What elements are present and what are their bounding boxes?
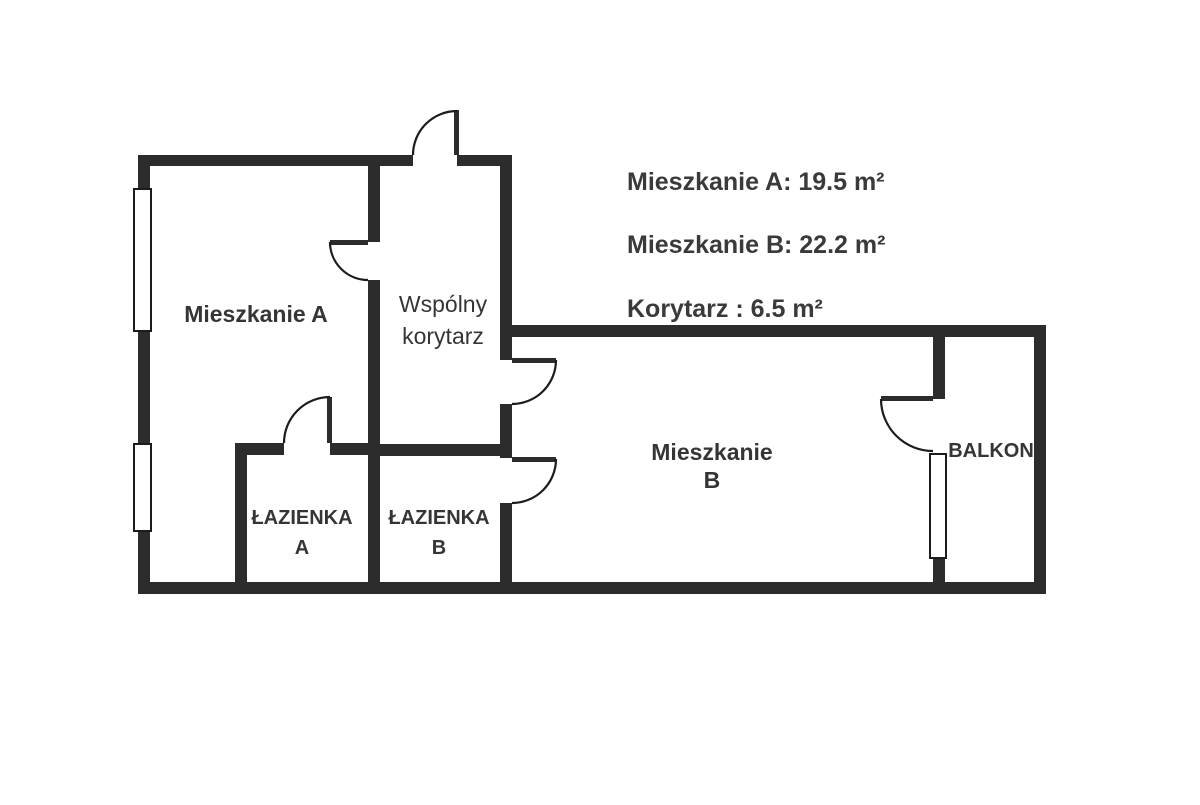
label-lazienka-a-line2: A <box>295 537 309 559</box>
legend-mieszkanie-b-area: Mieszkanie B: 22.2 m² <box>627 231 885 260</box>
wall-mieszkanie-b-left-lower <box>500 503 512 582</box>
legend-mieszkanie-a-area: Mieszkanie A: 19.5 m² <box>627 168 885 197</box>
label-lazienka-a-line1: ŁAZIENKA <box>251 507 352 529</box>
door-leaf-entry <box>454 110 459 155</box>
label-lazienka-b: ŁAZIENKA B <box>388 503 489 563</box>
door-leaf-lazienka-a <box>327 397 332 443</box>
wall-bottom <box>138 582 1046 594</box>
label-lazienka-b-line2: B <box>432 537 446 559</box>
wall-lazienka-a-top-left <box>235 443 284 455</box>
label-lazienka-a: ŁAZIENKA A <box>251 503 352 563</box>
window-mieszkanie-a-upper <box>134 189 151 331</box>
label-wspolny-korytarz-line1: Wspólny <box>399 291 487 317</box>
wall-corridor-left-lower <box>368 280 380 582</box>
label-mieszkanie-b-line1: Mieszkanie <box>651 439 772 465</box>
wall-lazienka-a-left <box>235 443 247 582</box>
door-leaves <box>327 110 933 462</box>
wall-lazienka-a-top-right <box>330 443 368 455</box>
door-arc-lazienka-b <box>512 459 556 503</box>
label-mieszkanie-a: Mieszkanie A <box>184 300 328 328</box>
wall-lazienka-b-top <box>380 444 500 456</box>
label-balkon: BALKON <box>948 436 1034 466</box>
wall-balkon-lower <box>933 558 945 582</box>
door-leaf-balkon <box>881 396 933 401</box>
door-arc-balkon <box>881 399 933 451</box>
floorplan-drawing <box>0 0 1200 805</box>
door-arc-entry <box>413 111 457 155</box>
door-leaf-mieszkanie-b <box>512 358 556 363</box>
door-leaf-mieszkanie-a <box>330 240 368 245</box>
wall-corridor-left-upper <box>368 155 380 242</box>
door-leaf-lazienka-b <box>512 457 556 462</box>
label-mieszkanie-b: Mieszkanie B <box>651 438 772 494</box>
window-mieszkanie-a-lower <box>134 444 151 531</box>
wall-left-upper <box>138 155 150 190</box>
door-arc-mieszkanie-a <box>330 242 368 280</box>
wall-mieszkanie-b-left-mid <box>500 404 512 458</box>
door-arc-lazienka-a <box>284 397 330 443</box>
label-mieszkanie-b-line2: B <box>704 467 721 493</box>
label-wspolny-korytarz-line2: korytarz <box>402 323 484 349</box>
floorplan: Mieszkanie A Wspólny korytarz Mieszkanie… <box>0 0 1200 805</box>
label-wspolny-korytarz: Wspólny korytarz <box>399 288 487 352</box>
label-lazienka-b-line1: ŁAZIENKA <box>388 507 489 529</box>
wall-right <box>1034 325 1046 594</box>
door-arc-mieszkanie-b <box>512 360 556 404</box>
wall-balkon-upper <box>933 337 945 399</box>
wall-mieszkanie-b-top <box>500 325 1046 337</box>
legend-korytarz-area: Korytarz : 6.5 m² <box>627 295 823 324</box>
wall-left-middle <box>138 330 150 445</box>
window-balkon <box>930 454 946 558</box>
